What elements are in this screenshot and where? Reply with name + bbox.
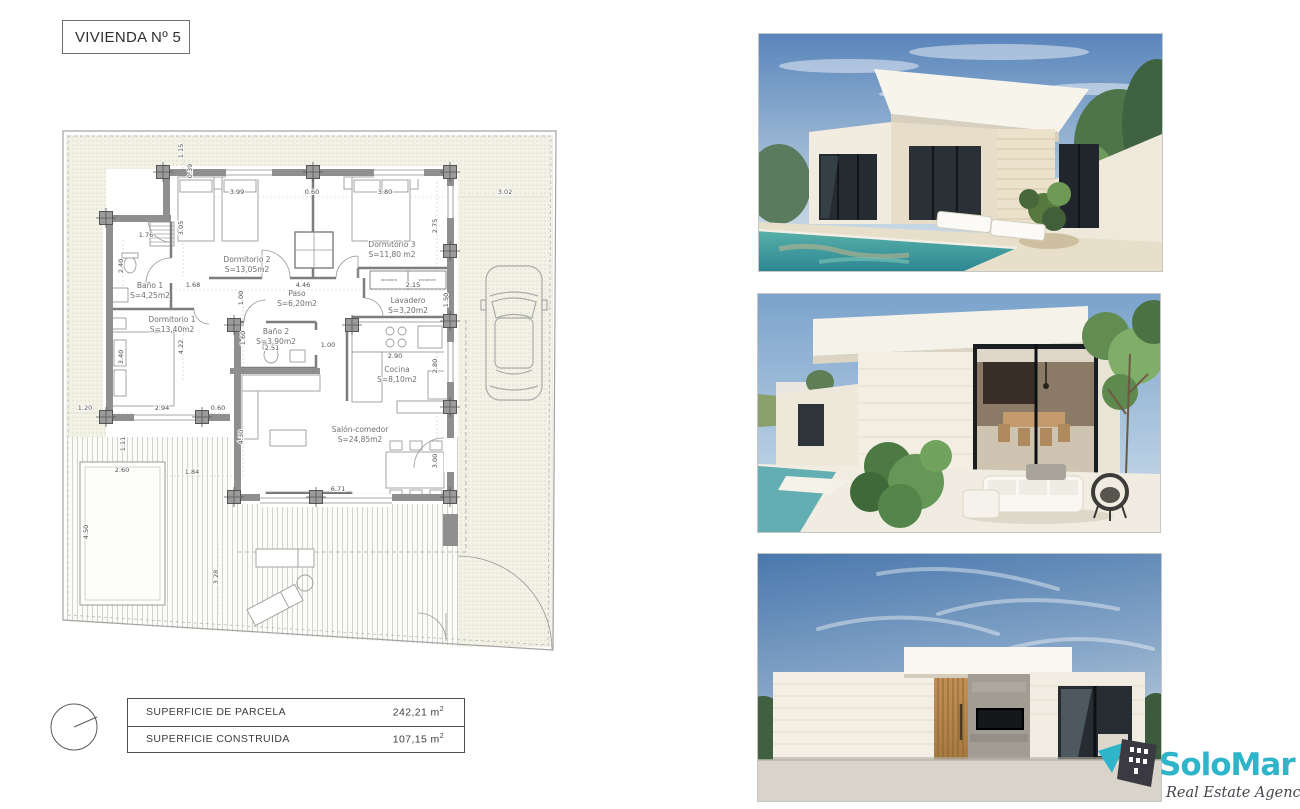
dimension-label: 2.60 — [115, 466, 129, 474]
pillar — [192, 407, 212, 427]
dimension-label: 2.75 — [431, 219, 439, 233]
pillar — [440, 487, 460, 507]
dimension-label: 4.22 — [177, 340, 185, 354]
pillar — [96, 407, 116, 427]
dimension-label: 1.15 — [177, 144, 185, 158]
room-name: Dormitorio 2 — [223, 255, 270, 264]
dimension-label: 3.80 — [378, 188, 392, 196]
pillar — [96, 208, 116, 228]
slot-window — [977, 709, 1023, 729]
logo-tagline: Real Estate Agency — [1165, 785, 1300, 801]
dimension-label: 1.50 — [442, 293, 450, 307]
pillar — [342, 315, 362, 335]
north-indicator — [51, 704, 97, 750]
appliance-label: lavadora — [381, 277, 398, 282]
appliance-label: secadora — [418, 277, 435, 282]
dimension-label: 3.05 — [177, 221, 185, 235]
sink-2 — [290, 350, 305, 362]
room-area: S=24,85m2 — [338, 435, 383, 444]
pillar — [303, 162, 323, 182]
render-photo-pool — [758, 33, 1163, 272]
dimension-label: 2.40 — [117, 259, 125, 273]
room-area: S=4,25m2 — [130, 291, 170, 300]
floor-plan: 1.150.393.990.603.803.023.052.751.762.40… — [0, 0, 660, 790]
sofa — [242, 375, 320, 391]
dimension-label: 1.68 — [186, 281, 200, 289]
dimension-label: 3.00 — [431, 454, 439, 468]
room-name: Baño 1 — [137, 281, 163, 290]
room-name: Dormitorio 3 — [368, 240, 415, 249]
dimension-label: 3.40 — [117, 350, 125, 364]
dimension-label: 1.76 — [139, 231, 153, 239]
dimension-label: 2.94 — [155, 404, 169, 412]
dimension-label: 3.02 — [498, 188, 512, 196]
room-area: S=6,20m2 — [277, 299, 317, 308]
dimension-label: 0.60 — [211, 404, 225, 412]
dimension-label: 1.00 — [321, 341, 335, 349]
logo-building-icon — [1117, 739, 1157, 787]
dimension-label: 4.46 — [296, 281, 310, 289]
pillar — [306, 487, 326, 507]
room-name: Dormitorio 1 — [148, 315, 195, 324]
room-name: Lavadero — [391, 296, 426, 305]
room-area: S=8,10m2 — [377, 375, 417, 384]
table-row: SUPERFICIE CONSTRUIDA 107,15 m2 — [128, 726, 464, 753]
pillar — [153, 162, 173, 182]
row-label: SUPERFICIE DE PARCELA — [146, 706, 286, 718]
dimension-label: 1.60 — [239, 331, 247, 345]
surface-summary-table: SUPERFICIE DE PARCELA 242,21 m2 SUPERFIC… — [127, 698, 465, 753]
dimension-label: 2.80 — [431, 359, 439, 373]
row-value: 107,15 m2 — [393, 733, 444, 746]
row-label: SUPERFICIE CONSTRUIDA — [146, 733, 290, 745]
room-area: S=11,80 m2 — [369, 250, 416, 259]
pool — [80, 462, 165, 605]
dimension-label: 0.60 — [305, 188, 319, 196]
dimension-label: 1.00 — [237, 291, 245, 305]
room-area: S=13,05m2 — [225, 265, 270, 274]
dimension-label: 2.90 — [388, 352, 402, 360]
room-name: Paso — [288, 289, 306, 298]
row-value: 242,21 m2 — [393, 706, 444, 719]
logo-name: SoloMar — [1159, 747, 1296, 783]
pillar — [440, 311, 460, 331]
dimension-label: 6.71 — [331, 485, 345, 493]
listing-sheet-page: VIVIENDA Nº 5 — [0, 0, 1300, 809]
room-name: Salón-comedor — [332, 425, 389, 434]
kitchen-counter — [352, 322, 450, 352]
dimension-label: 1.20 — [78, 404, 92, 412]
room-area: S=3,20m2 — [388, 306, 428, 315]
room-name: Baño 2 — [263, 327, 289, 336]
sun-lounger — [256, 549, 298, 567]
room-area: S=13,40m2 — [150, 325, 195, 334]
dimension-label: 4.30 — [237, 430, 245, 444]
room-name: Cocina — [384, 365, 409, 374]
pillar — [440, 241, 460, 261]
dimension-label: 2.15 — [406, 281, 420, 289]
render-photo-terrace — [757, 293, 1161, 533]
dimension-label: 3.28 — [212, 570, 220, 584]
wall-block — [230, 368, 320, 374]
dimension-label: 0.39 — [186, 164, 194, 178]
toilet — [124, 257, 136, 273]
pillar — [440, 397, 460, 417]
table-row: SUPERFICIE DE PARCELA 242,21 m2 — [128, 699, 464, 726]
sink — [112, 288, 128, 302]
coffee-table — [270, 430, 306, 446]
pillar — [440, 162, 460, 182]
solomar-logo: SoloMar Real Estate Agency — [1038, 735, 1300, 807]
pillar — [224, 487, 244, 507]
dimension-label: 1.11 — [119, 437, 127, 451]
room-area: S=3,90m2 — [256, 337, 296, 346]
dimension-label: 1.84 — [185, 468, 199, 476]
dimension-label: 4.50 — [82, 525, 90, 539]
dimension-label: 3.99 — [230, 188, 244, 196]
pillar-block — [443, 514, 458, 546]
